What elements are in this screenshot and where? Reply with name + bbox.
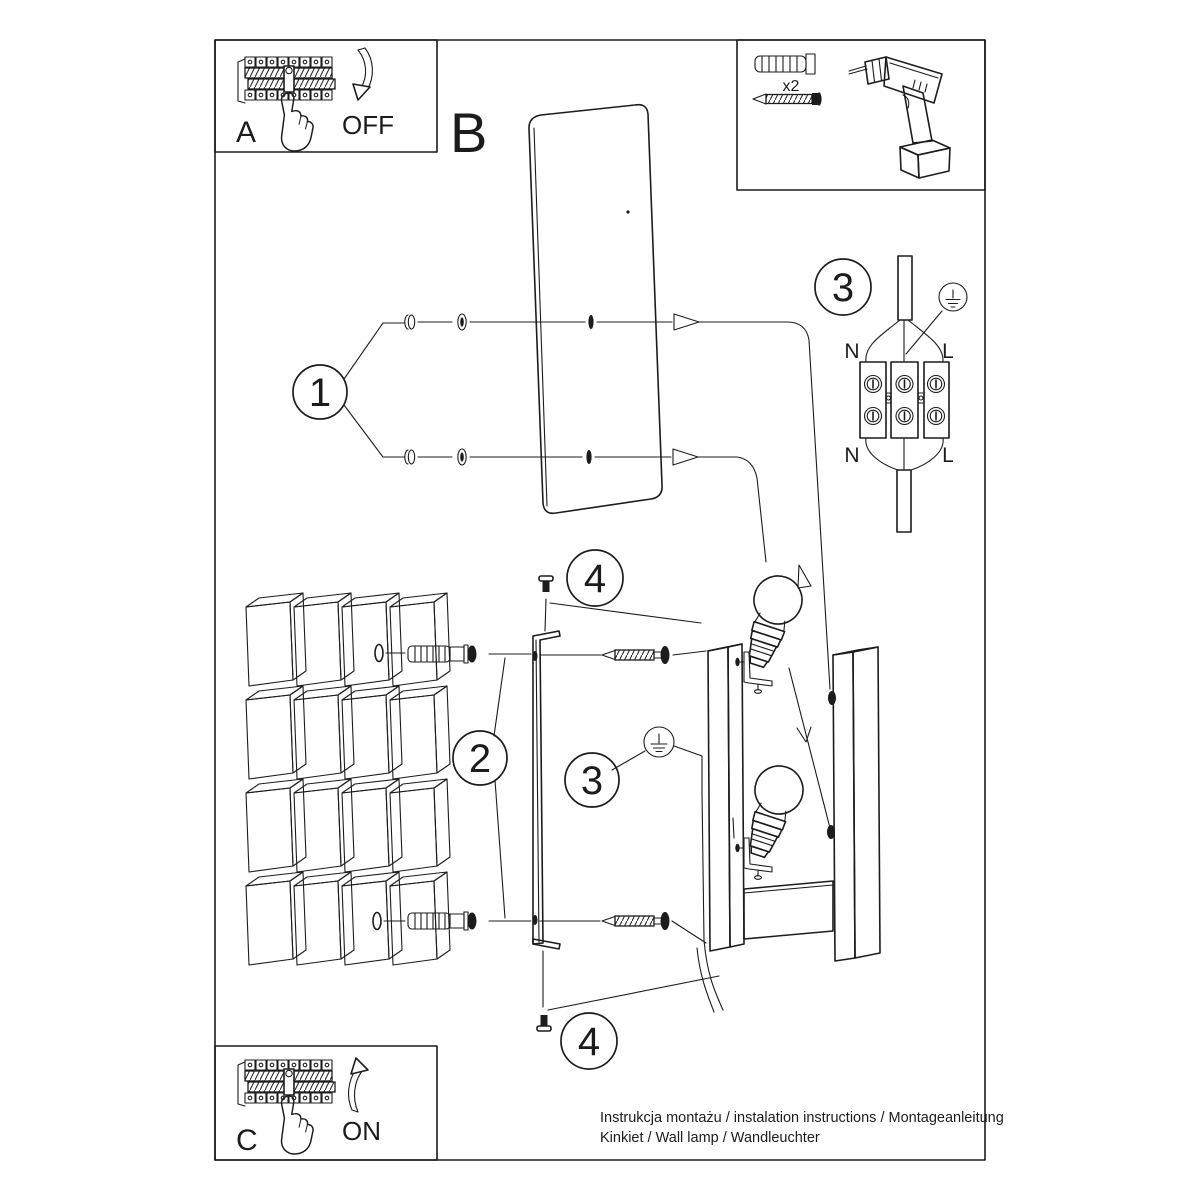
- lamp-rear-arm: [833, 652, 855, 961]
- drill-hole-top: [375, 645, 383, 662]
- ground-symbol-icon: [644, 727, 674, 757]
- pressing-hand-icon: [282, 93, 314, 151]
- panel-a-label: A: [236, 116, 256, 149]
- nut-icon: [458, 314, 466, 330]
- wire-l-bottom: L: [942, 444, 954, 467]
- pressing-hand-icon: [282, 1096, 314, 1154]
- step2-group: 2: [384, 645, 706, 943]
- step4-number: 4: [578, 1020, 600, 1064]
- arrow-down-icon: [798, 565, 811, 588]
- dowel-qty-label: x2: [783, 78, 800, 95]
- cable-bottom: [897, 470, 911, 532]
- wall-plug-screw-bottom: [408, 912, 477, 930]
- on-arrow-icon: [349, 1058, 368, 1112]
- panel-c-label: C: [236, 1124, 258, 1157]
- cable-top: [898, 256, 912, 320]
- plate-screw-top: [588, 315, 593, 329]
- step3-number: 3: [581, 759, 603, 803]
- lamp-back-plate: [708, 647, 730, 951]
- tools-box: x2: [737, 40, 985, 190]
- step3-wiring-group: 3 N L N L: [815, 256, 967, 532]
- washer-icon: [405, 450, 415, 464]
- plate-screw-bottom: [586, 450, 591, 464]
- lamp-crossbar: [744, 881, 833, 939]
- step2-number: 2: [469, 737, 491, 781]
- footer-line1: Instrukcja montażu / instalation instruc…: [600, 1110, 1004, 1126]
- breaker-panel-icon: [238, 1060, 335, 1106]
- lamp-body: [697, 565, 880, 1012]
- panel-a-power-off: A OFF: [215, 40, 437, 152]
- wire-l-top: L: [942, 340, 954, 363]
- set-screw-top: [539, 576, 553, 592]
- step1-group: 1: [293, 314, 830, 689]
- drill-icon: [849, 57, 950, 178]
- set-screw-bottom: [537, 1015, 551, 1031]
- screw-icon: [753, 92, 822, 105]
- step4-top-group: 4: [539, 550, 701, 631]
- diagram-canvas: A OFF x2 B: [0, 0, 1200, 1200]
- light-bulb-top: [734, 570, 808, 673]
- step-b-label: B: [450, 101, 487, 164]
- mounting-bracket: [533, 631, 561, 949]
- footer-line2: Kinkiet / Wall lamp / Wandleuchter: [600, 1130, 820, 1146]
- mount-screw-top: [602, 646, 670, 664]
- step3-number: 3: [832, 266, 854, 310]
- arrow-right-icon: [674, 314, 699, 330]
- keyhole-slot-bottom: [827, 825, 835, 839]
- ground-symbol-icon: [906, 283, 967, 354]
- wire-n-top: N: [844, 340, 859, 363]
- cover-plate: [529, 105, 662, 514]
- keyhole-slot-top: [828, 691, 836, 705]
- nut-icon: [458, 449, 466, 465]
- drill-hole-bottom: [373, 913, 381, 930]
- off-arrow-icon: [353, 48, 372, 100]
- panel-a-action: OFF: [342, 110, 394, 140]
- step4-number: 4: [584, 557, 606, 601]
- plate-detail-dot: [626, 210, 629, 213]
- panel-c-power-on: C ON: [215, 1046, 437, 1160]
- mount-screw-bottom: [602, 912, 670, 930]
- step3-earth-group: 3: [565, 727, 702, 807]
- arrow-down-icon: [797, 727, 811, 742]
- wire-n-bottom: N: [844, 444, 859, 467]
- panel-c-action: ON: [342, 1116, 381, 1146]
- breaker-panel-icon: [238, 57, 335, 103]
- terminal-block: [860, 362, 949, 438]
- step4-bottom-group: 4: [537, 951, 719, 1069]
- instruction-sheet: A OFF x2 B: [0, 0, 1200, 1200]
- tools-box-border: [737, 40, 985, 190]
- washer-icon: [405, 315, 415, 329]
- wall-plug-screw-top: [408, 645, 477, 663]
- light-bulb-bottom: [735, 760, 809, 863]
- wall-plug-icon: [755, 54, 815, 74]
- arrow-right-icon: [673, 449, 698, 465]
- tiled-wall: [246, 593, 450, 965]
- step1-number: 1: [309, 371, 331, 415]
